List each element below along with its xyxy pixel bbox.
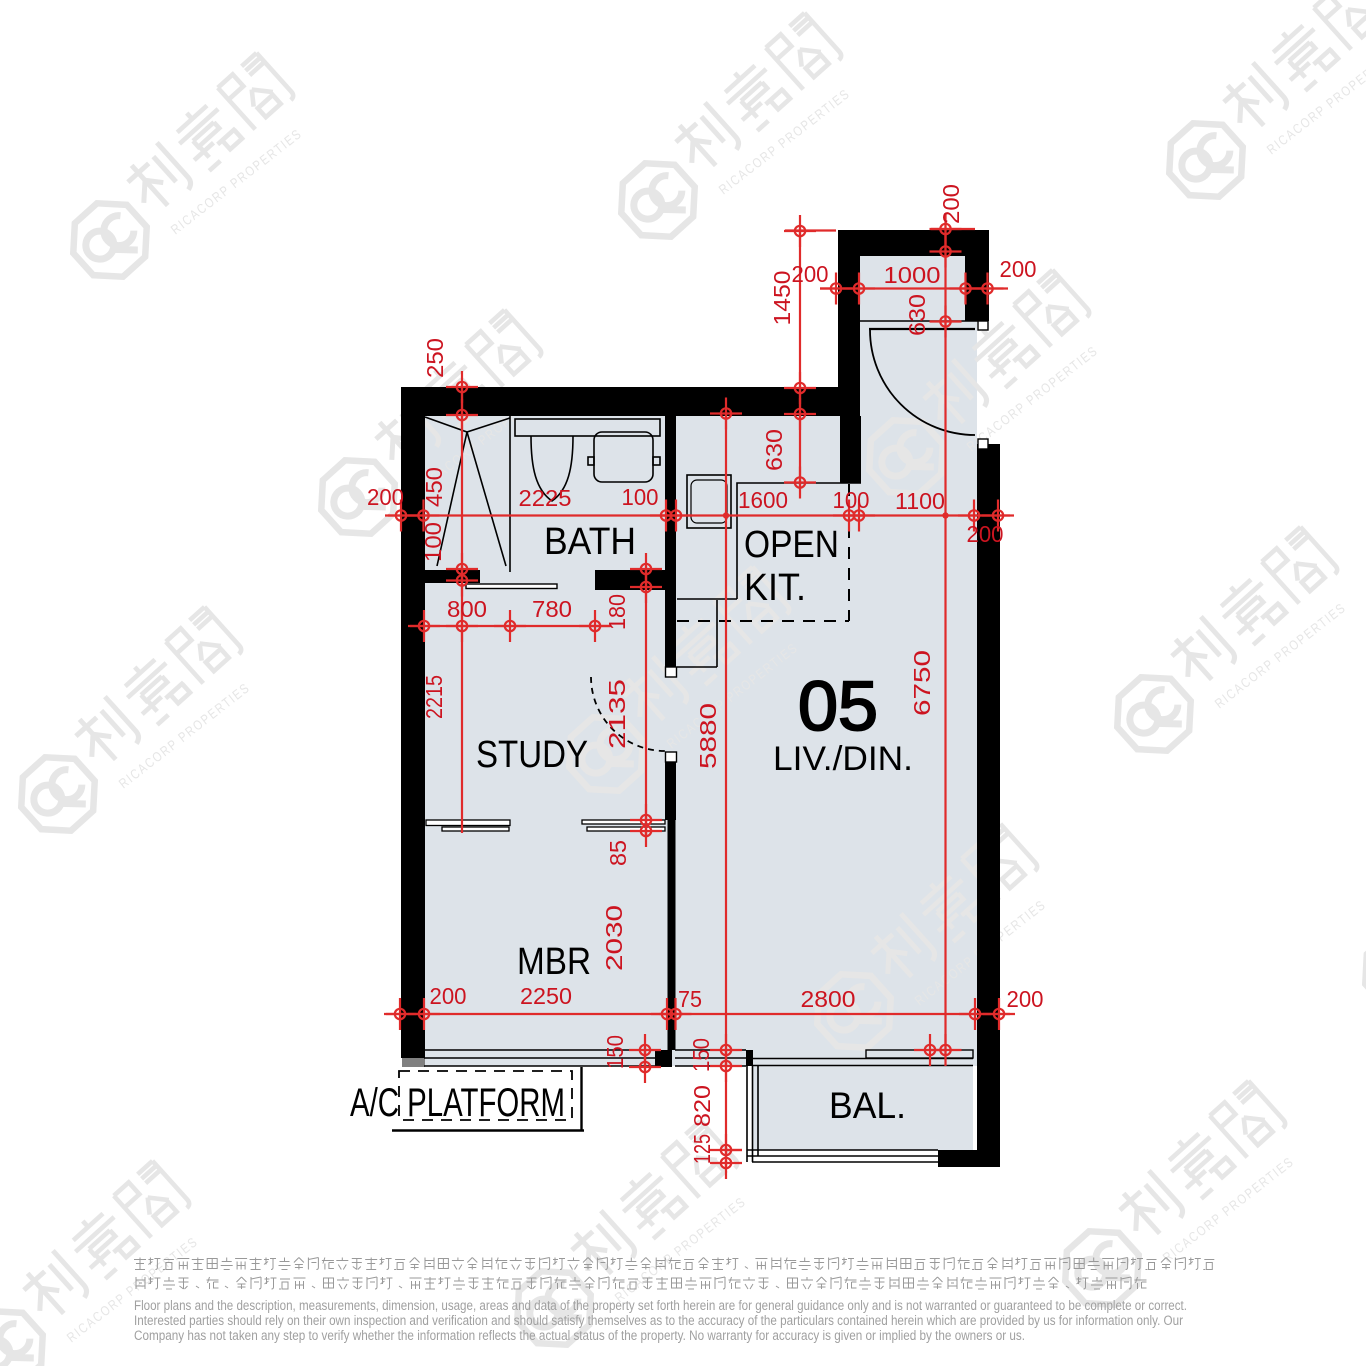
svg-text:75: 75 [678, 986, 702, 1012]
svg-text:200: 200 [938, 184, 964, 224]
svg-text:MBR: MBR [517, 941, 591, 983]
svg-text:800: 800 [447, 596, 487, 622]
svg-text:450: 450 [421, 467, 447, 507]
svg-text:2030: 2030 [601, 905, 627, 971]
svg-text:1450: 1450 [769, 271, 795, 326]
svg-text:KIT.: KIT. [744, 567, 806, 609]
svg-text:Interested parties should rely: Interested parties should rely on their … [134, 1313, 1183, 1328]
svg-text:200: 200 [367, 484, 404, 510]
svg-text:5880: 5880 [695, 703, 721, 769]
svg-text:820: 820 [689, 1085, 715, 1127]
svg-text:Company has not taken any step: Company has not taken any step to verify… [134, 1328, 1025, 1343]
svg-text:780: 780 [532, 596, 572, 622]
svg-text:BAL.: BAL. [829, 1085, 906, 1126]
svg-text:150: 150 [602, 1035, 628, 1069]
svg-text:2800: 2800 [801, 986, 856, 1012]
svg-text:Floor plans and the descriptio: Floor plans and the description, measure… [134, 1298, 1187, 1313]
svg-text:LIV./DIN.: LIV./DIN. [773, 740, 913, 778]
svg-text:150: 150 [688, 1038, 714, 1072]
svg-text:180: 180 [604, 594, 630, 630]
svg-text:200: 200 [967, 521, 1004, 547]
svg-text:200: 200 [1000, 256, 1037, 282]
svg-text:1000: 1000 [884, 262, 941, 288]
svg-text:200: 200 [792, 261, 829, 287]
svg-text:630: 630 [904, 294, 930, 336]
svg-text:100: 100 [622, 484, 659, 510]
svg-text:2215: 2215 [421, 675, 447, 719]
svg-text:OPEN: OPEN [744, 524, 839, 566]
svg-text:2250: 2250 [520, 983, 572, 1009]
svg-text:05: 05 [798, 667, 878, 745]
svg-text:STUDY: STUDY [476, 734, 588, 776]
svg-text:100: 100 [420, 522, 446, 562]
svg-text:85: 85 [605, 840, 631, 866]
svg-text:A/C PLATFORM: A/C PLATFORM [350, 1081, 565, 1125]
svg-text:2135: 2135 [604, 679, 630, 749]
svg-text:630: 630 [761, 429, 787, 471]
svg-text:6750: 6750 [909, 650, 935, 716]
svg-text:1100: 1100 [895, 488, 945, 514]
svg-text:125: 125 [689, 1134, 715, 1164]
svg-text:2225: 2225 [519, 485, 572, 511]
svg-text:BATH: BATH [544, 521, 636, 563]
svg-text:200: 200 [430, 983, 467, 1009]
svg-text:100: 100 [833, 487, 870, 513]
svg-text:200: 200 [1007, 986, 1044, 1012]
svg-text:250: 250 [422, 338, 448, 378]
svg-text:1600: 1600 [738, 487, 788, 513]
